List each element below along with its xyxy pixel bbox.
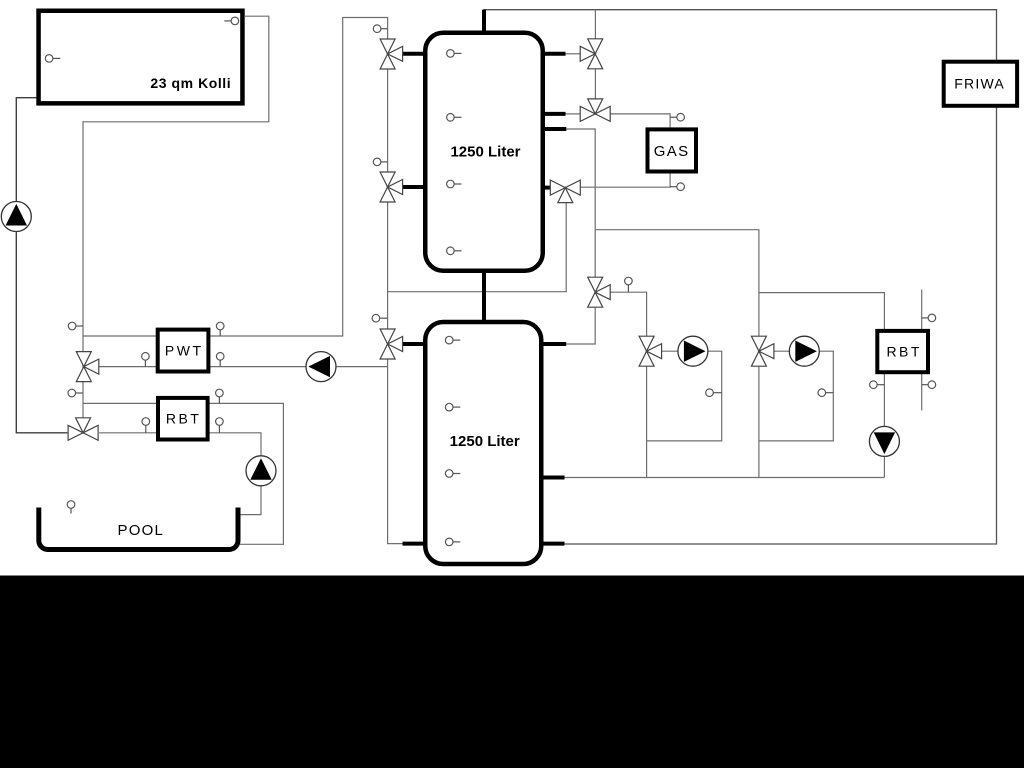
- svg-text:PWT: PWT: [165, 343, 204, 359]
- svg-text:RBT: RBT: [166, 411, 202, 427]
- svg-text:1250 Liter: 1250 Liter: [450, 433, 520, 450]
- svg-text:23 qm Kolli: 23 qm Kolli: [150, 75, 231, 91]
- svg-text:POOL: POOL: [118, 522, 164, 539]
- svg-text:GAS: GAS: [654, 143, 690, 160]
- svg-text:FRIWA: FRIWA: [954, 76, 1005, 92]
- svg-text:RBT: RBT: [886, 344, 922, 360]
- svg-text:1250 Liter: 1250 Liter: [450, 144, 520, 161]
